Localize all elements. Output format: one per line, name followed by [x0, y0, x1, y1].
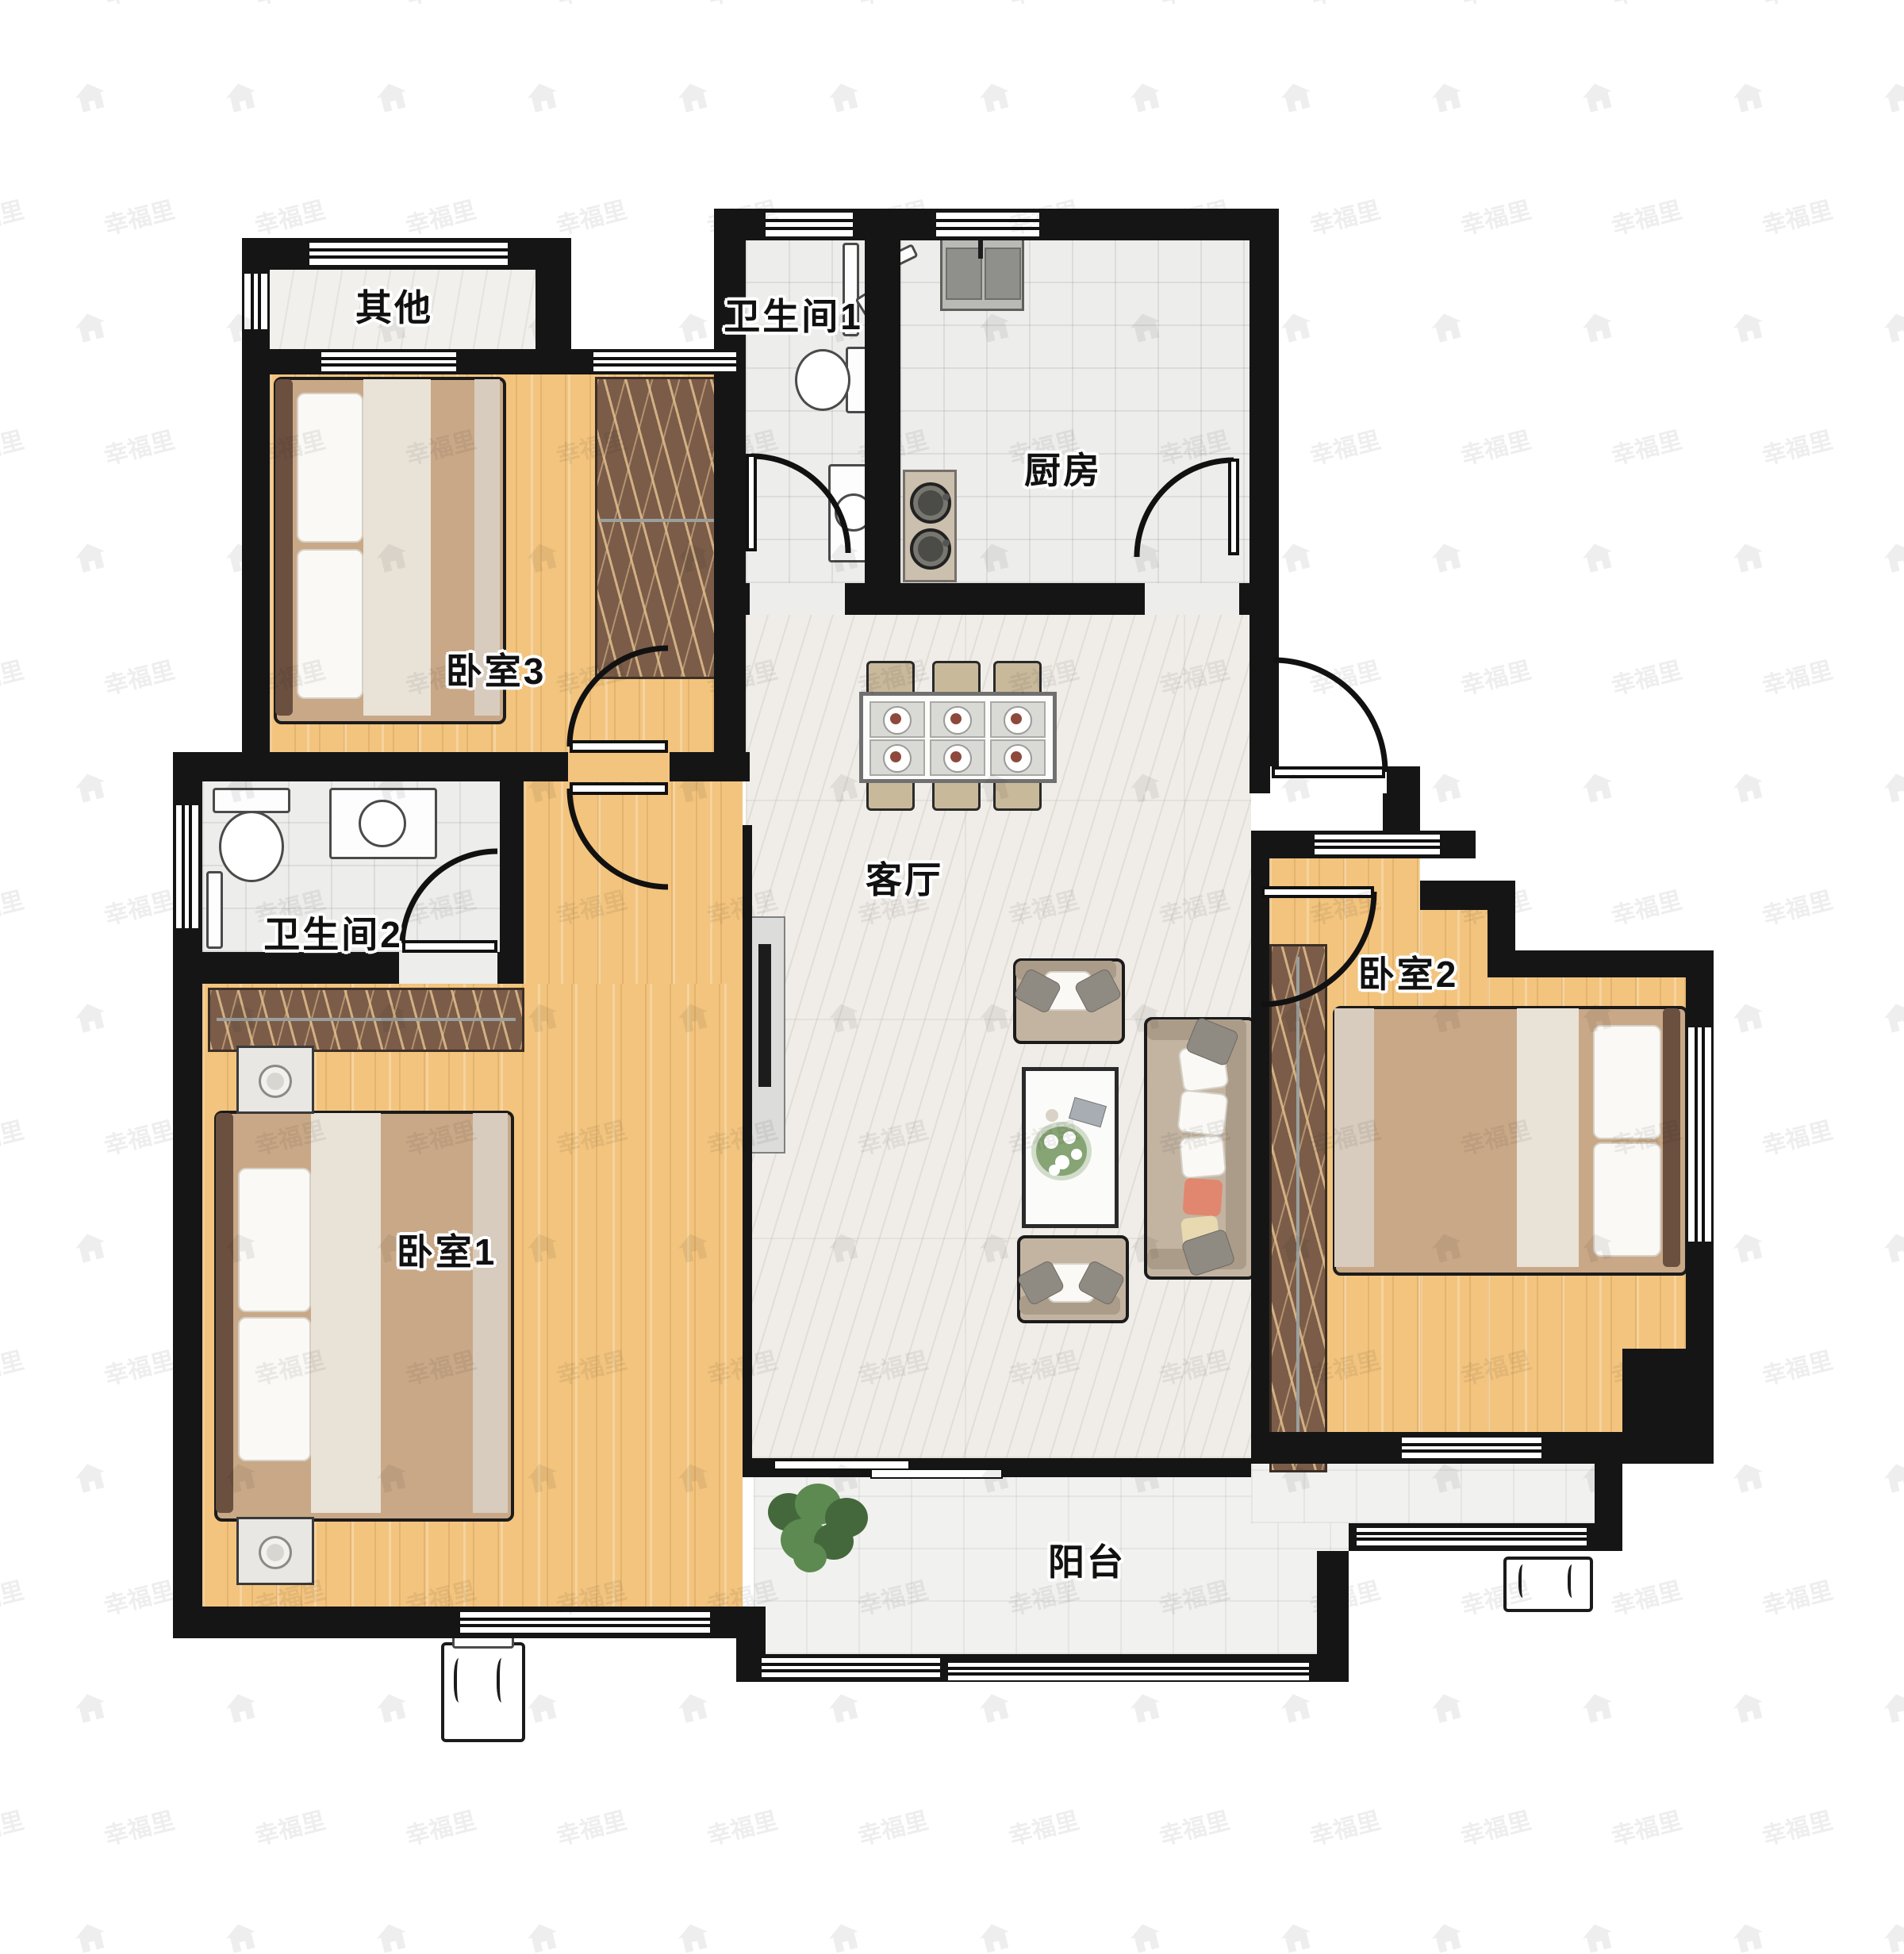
watermark-house-icon — [1730, 1000, 1766, 1034]
watermark-house-icon — [223, 1691, 259, 1724]
window — [321, 352, 456, 371]
watermark-house-icon — [1730, 310, 1766, 344]
sink-basin — [985, 248, 1021, 300]
flower-bloom — [1071, 1149, 1082, 1160]
watermark-text: 幸福里 — [1758, 0, 1836, 11]
watermark-house-icon — [826, 1921, 862, 1954]
watermark-text: 幸福里 — [1758, 190, 1836, 241]
watermark-text: 幸福里 — [251, 0, 328, 11]
watermark-text: 幸福里 — [1457, 0, 1534, 11]
watermark-text: 幸福里 — [1457, 1571, 1534, 1622]
watermark-house-icon — [524, 1921, 560, 1954]
watermark-house-icon — [1881, 770, 1904, 804]
door-leaf — [570, 740, 668, 753]
sink-basin — [359, 800, 406, 847]
watermark-text: 幸福里 — [1758, 881, 1836, 931]
watermark-text: 幸福里 — [0, 1341, 27, 1392]
watermark-house-icon — [1278, 1691, 1314, 1724]
ac-bracket — [454, 1658, 466, 1703]
room-label-living: 客厅 — [866, 851, 943, 904]
watermark-house-icon — [223, 80, 259, 113]
flower-bloom — [1049, 1165, 1060, 1176]
watermark-text: 幸福里 — [1306, 420, 1384, 471]
window — [1357, 1528, 1587, 1545]
watermark-text: 幸福里 — [1758, 651, 1836, 701]
watermark-house-icon — [1127, 80, 1163, 113]
doorway — [568, 752, 670, 781]
watermark-text: 幸福里 — [1306, 651, 1384, 701]
watermark-house-icon — [1580, 1691, 1615, 1724]
watermark-text: 幸福里 — [1004, 0, 1082, 11]
watermark-house-icon — [1881, 1000, 1904, 1034]
watermark-text: 幸福里 — [1607, 1801, 1685, 1852]
watermark-text: 幸福里 — [401, 190, 479, 241]
door-leaf — [402, 940, 497, 953]
watermark-house-icon — [1881, 1230, 1904, 1264]
watermark-text: 幸福里 — [1607, 651, 1685, 701]
watermark-text: 幸福里 — [854, 1801, 931, 1852]
watermark-house-icon — [1580, 80, 1615, 113]
watermark-text: 幸福里 — [1607, 1571, 1685, 1622]
plant — [793, 1542, 827, 1572]
ac-bracket — [497, 1658, 509, 1703]
sink-basin — [946, 248, 982, 300]
door-leaf — [570, 782, 668, 795]
watermark-house-icon — [1881, 1921, 1904, 1954]
watermark-house-icon — [374, 1921, 409, 1954]
watermark-text: 幸福里 — [0, 1801, 27, 1852]
toilet-bowl — [795, 349, 850, 411]
plate-food — [950, 751, 962, 762]
watermark-house-icon — [72, 1461, 108, 1494]
watermark-house-icon — [1278, 80, 1314, 113]
watermark-house-icon — [72, 1230, 108, 1264]
watermark-text: 幸福里 — [100, 1571, 178, 1622]
watermark-house-icon — [826, 1691, 862, 1724]
watermark-house-icon — [1881, 80, 1904, 113]
watermark-house-icon — [1429, 1691, 1464, 1724]
watermark-house-icon — [374, 80, 409, 113]
watermark-house-icon — [1580, 770, 1615, 804]
wall — [1515, 950, 1714, 977]
burner — [910, 482, 951, 524]
room-label-bathroom1: 卫生间1 — [724, 288, 863, 340]
watermark-house-icon — [1429, 1921, 1464, 1954]
watermark-text: 幸福里 — [0, 1571, 27, 1622]
watermark-text: 幸福里 — [1607, 881, 1685, 931]
plate-food — [890, 751, 901, 762]
watermark-text: 幸福里 — [703, 1801, 781, 1852]
watermark-house-icon — [1881, 310, 1904, 344]
watermark-house-icon — [72, 1691, 108, 1724]
watermark-house-icon — [1730, 80, 1766, 113]
watermark-house-icon — [1881, 540, 1904, 574]
watermark-house-icon — [1730, 1691, 1766, 1724]
bed-pillow — [238, 1317, 311, 1461]
lamp — [259, 1065, 292, 1098]
window — [309, 243, 508, 265]
watermark-text: 幸福里 — [1607, 420, 1685, 471]
doorway — [399, 952, 497, 984]
watermark-text: 幸福里 — [0, 1111, 27, 1161]
watermark-house-icon — [1730, 1230, 1766, 1264]
door-leaf — [1272, 766, 1385, 778]
watermark-house-icon — [1580, 310, 1615, 344]
wall — [242, 349, 270, 781]
watermark-house-icon — [1429, 310, 1464, 344]
window — [1315, 835, 1440, 854]
watermark-house-icon — [1278, 540, 1314, 574]
doorway — [750, 583, 845, 615]
watermark-house-icon — [1730, 1921, 1766, 1954]
watermark-text: 幸福里 — [401, 0, 479, 11]
watermark-text: 幸福里 — [1457, 190, 1534, 241]
watermark-text: 幸福里 — [1457, 1801, 1534, 1852]
watermark-text: 幸福里 — [0, 651, 27, 701]
window — [762, 1658, 940, 1677]
watermark-house-icon — [675, 310, 711, 344]
watermark-text: 幸福里 — [552, 0, 630, 11]
watermark-house-icon — [1127, 1691, 1163, 1724]
watermark-text: 幸福里 — [0, 0, 27, 11]
watermark-text: 幸福里 — [1155, 0, 1233, 11]
watermark-house-icon — [977, 1921, 1012, 1954]
shower-screen — [206, 871, 223, 949]
lamp — [259, 1536, 292, 1569]
watermark-house-icon — [72, 770, 108, 804]
toilet-bowl — [219, 811, 284, 882]
watermark-house-icon — [72, 540, 108, 574]
watermark-text: 幸福里 — [1457, 651, 1534, 701]
watermark-text: 幸福里 — [100, 651, 178, 701]
watermark-text: 幸福里 — [100, 190, 178, 241]
watermark-house-icon — [826, 80, 862, 113]
watermark-text: 幸福里 — [100, 881, 178, 931]
watermark-house-icon — [977, 1691, 1012, 1724]
watermark-text: 幸福里 — [703, 0, 781, 11]
watermark-text: 幸福里 — [100, 1801, 178, 1852]
stove-knob — [942, 493, 950, 501]
wall — [865, 240, 900, 583]
watermark-house-icon — [72, 1000, 108, 1034]
tv — [758, 944, 771, 1087]
watermark-text: 幸福里 — [1758, 420, 1836, 471]
watermark-text: 幸福里 — [552, 190, 630, 241]
sofa-pillow — [1182, 1177, 1223, 1216]
watermark-text: 幸福里 — [0, 881, 27, 931]
wall — [173, 984, 202, 1638]
window — [1402, 1438, 1541, 1458]
wardrobe — [1269, 944, 1327, 1472]
window — [948, 1663, 1309, 1680]
watermark-text: 幸福里 — [1004, 1801, 1082, 1852]
stove-knob — [942, 539, 950, 547]
watermark-text: 幸福里 — [1758, 1111, 1836, 1161]
watermark-house-icon — [1278, 1921, 1314, 1954]
watermark-house-icon — [977, 80, 1012, 113]
watermark-house-icon — [72, 310, 108, 344]
watermark-text: 幸福里 — [1306, 190, 1384, 241]
watermark-text: 幸福里 — [100, 0, 178, 11]
bed-pillow — [297, 393, 363, 543]
watermark-text: 幸福里 — [1758, 1801, 1836, 1852]
watermark-house-icon — [1429, 770, 1464, 804]
door-leaf — [1228, 459, 1239, 555]
room-label-bedroom2: 卧室2 — [1358, 946, 1459, 998]
watermark-house-icon — [1278, 310, 1314, 344]
ac-bracket — [1568, 1564, 1579, 1598]
wardrobe — [208, 988, 524, 1052]
watermark-house-icon — [374, 1691, 409, 1724]
room-label-qita: 其他 — [355, 279, 433, 332]
watermark-house-icon — [72, 80, 108, 113]
window — [176, 805, 198, 928]
watermark-house-icon — [1730, 1461, 1766, 1494]
watermark-text: 幸福里 — [1607, 190, 1685, 241]
watermark-text: 幸福里 — [100, 1111, 178, 1161]
bed-blanket-stripe — [473, 1113, 508, 1513]
watermark-text: 幸福里 — [0, 420, 27, 471]
watermark-house-icon — [1730, 540, 1766, 574]
watermark-house-icon — [1429, 540, 1464, 574]
door-leaf — [746, 454, 757, 551]
wall — [1251, 858, 1269, 1460]
watermark-text: 幸福里 — [1758, 1341, 1836, 1392]
plate-food — [1011, 751, 1022, 762]
watermark-house-icon — [675, 1691, 711, 1724]
watermark-house-icon — [1127, 1921, 1163, 1954]
watermark-text: 幸福里 — [251, 1801, 328, 1852]
plate-food — [890, 713, 901, 724]
room-floor-bedroom1-hall — [524, 781, 743, 984]
watermark-text: 幸福里 — [854, 0, 931, 11]
watermark-house-icon — [1580, 1921, 1615, 1954]
plate-food — [950, 713, 962, 724]
bed-headboard — [216, 1113, 233, 1513]
watermark-text: 幸福里 — [0, 190, 27, 241]
watermark-house-icon — [223, 1921, 259, 1954]
watermark-text: 幸福里 — [1306, 1801, 1384, 1852]
watermark-house-icon — [1881, 1461, 1904, 1494]
room-label-bedroom1: 卧室1 — [397, 1223, 497, 1276]
watermark-text: 幸福里 — [1607, 0, 1685, 11]
room-label-bedroom3: 卧室3 — [446, 643, 547, 695]
watermark-text: 幸福里 — [401, 1801, 479, 1852]
wall — [1249, 209, 1279, 793]
window — [593, 352, 736, 371]
plate-food — [1011, 713, 1022, 724]
window — [1688, 1027, 1711, 1242]
watermark-text: 幸福里 — [1306, 0, 1384, 11]
watermark-house-icon — [1881, 1691, 1904, 1724]
bed-blanket-stripe — [311, 1113, 381, 1513]
room-label-bathroom2: 卫生间2 — [263, 906, 403, 958]
watermark-house-icon — [524, 80, 560, 113]
watermark-house-icon — [675, 1921, 711, 1954]
watermark-text: 幸福里 — [552, 1801, 630, 1852]
watermark-house-icon — [675, 80, 711, 113]
floor-plan: 其他 卧室3 卫生间1 厨房 客厅 卫生间2 卧室1 卧室2 阳台 幸福里幸福里… — [0, 0, 1904, 1904]
watermark-text: 幸福里 — [1155, 1801, 1233, 1852]
room-label-kitchen: 厨房 — [1024, 442, 1102, 494]
watermark-house-icon — [524, 1691, 560, 1724]
watermark-text: 幸福里 — [1758, 1571, 1836, 1622]
watermark-text: 幸福里 — [1457, 420, 1534, 471]
doorway — [1145, 583, 1239, 615]
watermark-house-icon — [1730, 770, 1766, 804]
watermark-text: 幸福里 — [100, 1341, 178, 1392]
room-label-balcony: 阳台 — [1048, 1534, 1126, 1586]
watermark-text: 幸福里 — [251, 190, 328, 241]
watermark-text: 幸福里 — [100, 420, 178, 471]
burner — [910, 528, 951, 570]
watermark-house-icon — [1429, 80, 1464, 113]
watermark-house-icon — [1580, 540, 1615, 574]
watermark-house-icon — [72, 1921, 108, 1954]
